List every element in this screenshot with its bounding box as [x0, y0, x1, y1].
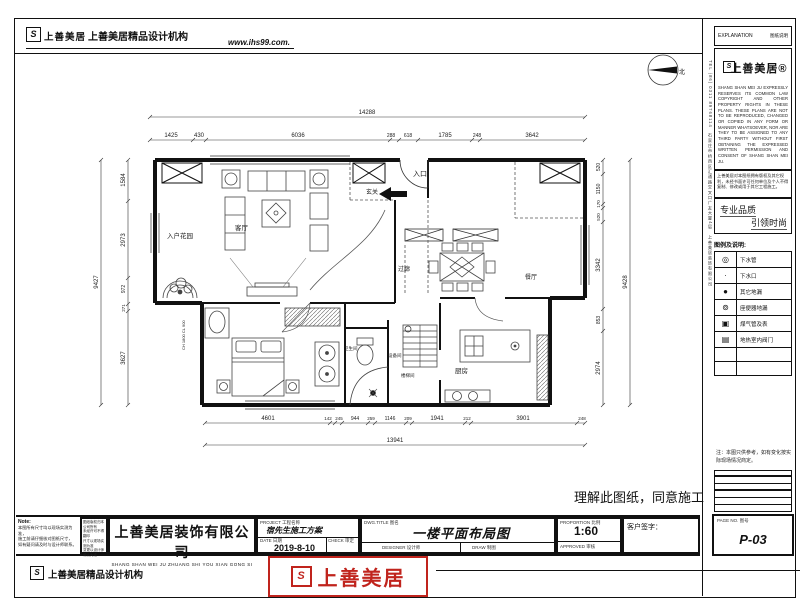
signature-label: 客户签字：: [627, 522, 662, 532]
footer-right-lines: [436, 570, 800, 571]
brand-name: 上善美居: [44, 29, 86, 43]
dim-right-4: 3342: [596, 258, 602, 272]
legend-table: ◎ 下水管 · 下水口 ● 其它地漏 ⊚ 座便器地漏 ▣ 煤气管及表 ▤ 地热室…: [714, 251, 792, 376]
stairs: [403, 325, 437, 367]
room-labels: 入户花园 客厅 玄关 入口 过廊 餐厅 卫生间 设备间 楼梯间 厨房 CH 18…: [167, 170, 537, 379]
gas-meter-icon: ▣: [715, 316, 737, 332]
brand-stamp: S 上善美居: [268, 556, 428, 597]
draw-label: DRAW 制图: [472, 545, 496, 551]
bedroom-furniture: [205, 308, 340, 396]
room-label-corridor: 过廊: [398, 265, 410, 273]
dim-bot-10: 248: [578, 416, 586, 421]
drain-outlet-icon: ·: [715, 268, 737, 284]
copyright-box: S 上善美居® SHANG SHAN MEI JU EXPRESSLY RESE…: [714, 48, 792, 170]
room-label-dining: 餐厅: [525, 273, 537, 281]
dining-set: [429, 243, 495, 291]
revision-rows: [714, 470, 792, 512]
footer-logo-icon: S: [30, 566, 44, 580]
stamp-brand: 上善美居: [318, 562, 406, 591]
legend-empty-cell: [737, 362, 792, 376]
dim-top-3: 288: [387, 133, 396, 139]
project-value: 宿先生施工方案: [266, 525, 322, 536]
pageno-value: P-03: [714, 532, 792, 547]
footer: S 上善美居精品设计机构 S 上善美居: [16, 556, 794, 594]
proportion-cell: PROPORTION 比例 1:60 APPROVED 审核: [556, 517, 622, 554]
entry-arch-plant: [163, 278, 197, 298]
signature-cell: 客户签字：: [622, 517, 700, 554]
dim-bot-6: 209: [404, 416, 412, 421]
check-label: CHECK 审定: [328, 538, 354, 544]
date-value: 2019-8-10: [274, 543, 315, 553]
dim-top-total: 14288: [359, 110, 376, 116]
pageno-cell: PAGE NO. 图号 P-03: [712, 514, 794, 556]
legend-label: 地热室内阀门: [737, 332, 792, 348]
slogan-box: 专业品质 引领时尚: [714, 198, 792, 234]
copyright-text: SHANG SHAN MEI JU EXPRESSLY RESERVES ITS…: [718, 85, 788, 164]
dim-left-4: 3627: [121, 351, 127, 365]
dim-right-5: 853: [596, 316, 602, 325]
legend: 图例及说明: ◎ 下水管 · 下水口 ● 其它地漏 ⊚ 座便器地漏 ▣ 煤气管及…: [714, 240, 792, 448]
titleblock: Note: 本图所有尺寸均以现场实测为准， 施工前请仔细核对图纸尺寸， 如有疑问…: [16, 515, 700, 556]
toilet-drain-icon: ⊚: [715, 300, 737, 316]
slogan-quality: 专业品质: [720, 203, 756, 217]
dim-left-2: 972: [121, 285, 127, 294]
agency-name: 上善美居精品设计机构: [88, 28, 188, 43]
entrance-door: [379, 160, 428, 201]
interior-walls: [202, 160, 550, 405]
dim-right-2: 170: [596, 200, 601, 208]
explanation-label: EXPLANATION: [718, 33, 753, 39]
company-cell: 上善美居装饰有限公司 SHANG SHAN WEI JU ZHUANG SHI …: [108, 517, 256, 554]
dim-bot-2: 245: [335, 416, 343, 421]
pageno-label: PAGE NO. 图号: [717, 518, 749, 524]
dim-bot-3: 944: [351, 416, 360, 422]
corridor-beam: [405, 229, 498, 241]
titleblock-note-cell: Note: 本图所有尺寸均以现场实测为准， 施工前请仔细核对图纸尺寸， 如有疑问…: [18, 519, 78, 554]
stamp-logo-icon: S: [291, 566, 312, 587]
dim-bot-0: 4601: [261, 416, 275, 422]
dim-right-1: 1150: [596, 183, 602, 194]
explanation-header: EXPLANATION 图纸说明: [714, 26, 792, 46]
legend-empty-cell: [715, 362, 737, 376]
entry-label: 入口: [413, 170, 427, 178]
legend-empty-cell: [737, 348, 792, 362]
heating-valve-icon: ▤: [715, 332, 737, 348]
dim-left-0: 1584: [121, 173, 127, 187]
website: www.ihs99.com.: [228, 38, 290, 47]
room-label-living: 客厅: [235, 223, 249, 232]
kitchen-furniture: [445, 330, 548, 402]
dim-top-0: 1425: [164, 133, 178, 139]
approval-statement: 理解此图纸，同意施工: [574, 487, 704, 506]
legend-label: 其它地漏: [737, 284, 792, 300]
dim-right-total: 9428: [623, 275, 629, 289]
notice-box: 上善美居对本图纸拥有版权及其它权利，未经书面许可任何单位及个人不得复制、修改或用…: [714, 170, 792, 198]
window-note: CH 1800 CL 900: [181, 320, 186, 350]
project-cell: PROJECT 工程名称 宿先生施工方案 DATE 日期 2019-8-10 C…: [256, 517, 360, 554]
twin-basins: [315, 342, 339, 386]
north-label: 北: [679, 68, 685, 76]
brand-logo-icon: S: [26, 27, 41, 42]
dim-bot-1: 142: [324, 416, 332, 421]
mini-line: 尺寸以现场实测为准: [83, 539, 105, 548]
room-label-stair: 楼梯间: [401, 372, 415, 379]
dim-bot-7: 1941: [430, 416, 444, 422]
slogan-fashion: 引领时尚: [751, 216, 787, 230]
dim-top-4: 618: [404, 133, 413, 139]
dim-top-5: 1785: [438, 133, 452, 139]
room-label-bath: 卫生间: [344, 345, 358, 352]
titleblock-mini-cell: 图纸版权归本公司所有 未经许可不得翻印 尺寸以现场实测为准 变更以设计师确认为准: [80, 517, 108, 554]
legend-label: 下水管: [737, 252, 792, 268]
explanation-label-cn: 图纸说明: [770, 33, 788, 39]
floor-drain-icon: ●: [715, 284, 737, 300]
drawing-sheet: S 上善美居 上善美居精品设计机构 www.ihs99.com. 北: [0, 0, 800, 600]
room-label-foyer: 玄关: [366, 188, 378, 196]
note-line: 本图所有尺寸均以现场实测为准，: [18, 525, 78, 536]
mini-line: 未经许可不得翻印: [83, 529, 105, 538]
dim-top-1: 430: [194, 133, 205, 139]
floor-plan: 北: [85, 50, 695, 512]
legend-label: 下水口: [737, 268, 792, 284]
dim-right-6: 2974: [596, 361, 602, 375]
dim-bottom-total: 13941: [387, 438, 404, 444]
legend-label: 座便器地漏: [737, 300, 792, 316]
proportion-value: 1:60: [574, 524, 598, 538]
legend-empty-cell: [715, 348, 737, 362]
room-label-kitchen: 厨房: [455, 366, 468, 375]
living-furniture: [222, 170, 385, 296]
dwg-title-value: 一楼平面布局图: [412, 523, 510, 542]
dim-right-0: 520: [596, 163, 602, 172]
company-contact-vertical: TEL (86) 0311 89768114 石家庄市桥西区汇通路交叉口广友大厦…: [704, 60, 713, 510]
dim-top-6: 248: [473, 133, 482, 139]
dim-left-1: 2973: [121, 233, 127, 247]
dim-left-3: 271: [121, 304, 126, 312]
designer-label: DESIGNER 设计师: [382, 545, 420, 551]
sidebar-brand: 上善美居®: [730, 63, 787, 75]
dim-right-3: 520: [596, 213, 601, 221]
dwg-title-label: DWG.TITLE 图名: [364, 520, 399, 526]
dim-bot-5: 1146: [385, 416, 396, 422]
dim-left-total: 9427: [94, 275, 100, 289]
legend-label: 煤气管及表: [737, 316, 792, 332]
legend-title: 图例及说明:: [714, 240, 792, 249]
footer-agency: 上善美居精品设计机构: [48, 567, 143, 581]
drain-pipe-icon: ◎: [715, 252, 737, 268]
dim-top-7: 3642: [525, 133, 539, 139]
dim-bot-4: 259: [367, 416, 375, 421]
dim-bot-8: 212: [463, 416, 471, 421]
dwg-title-cell: DWG.TITLE 图名 一楼平面布局图 DESIGNER 设计师 DRAW 制…: [360, 517, 556, 554]
approved-label: APPROVED 审核: [560, 544, 595, 550]
room-label-entry-garden: 入户花园: [167, 231, 193, 240]
north-arrow-icon: 北: [648, 55, 685, 85]
room-label-equipment: 设备间: [388, 352, 402, 359]
dim-bot-9: 3901: [516, 416, 530, 422]
exterior-walls: [155, 160, 585, 405]
dim-top-2: 6036: [291, 133, 305, 139]
sidebar-divider: [702, 18, 703, 596]
note-line: 如有疑问请及时与设计师联系。: [18, 542, 78, 548]
sidebar-note: 注：本图只供参考，如有变化按实际现场情况商定。: [716, 450, 792, 465]
entry-arrow-icon: [379, 187, 407, 201]
sidebar-logo-icon: S: [723, 61, 735, 73]
